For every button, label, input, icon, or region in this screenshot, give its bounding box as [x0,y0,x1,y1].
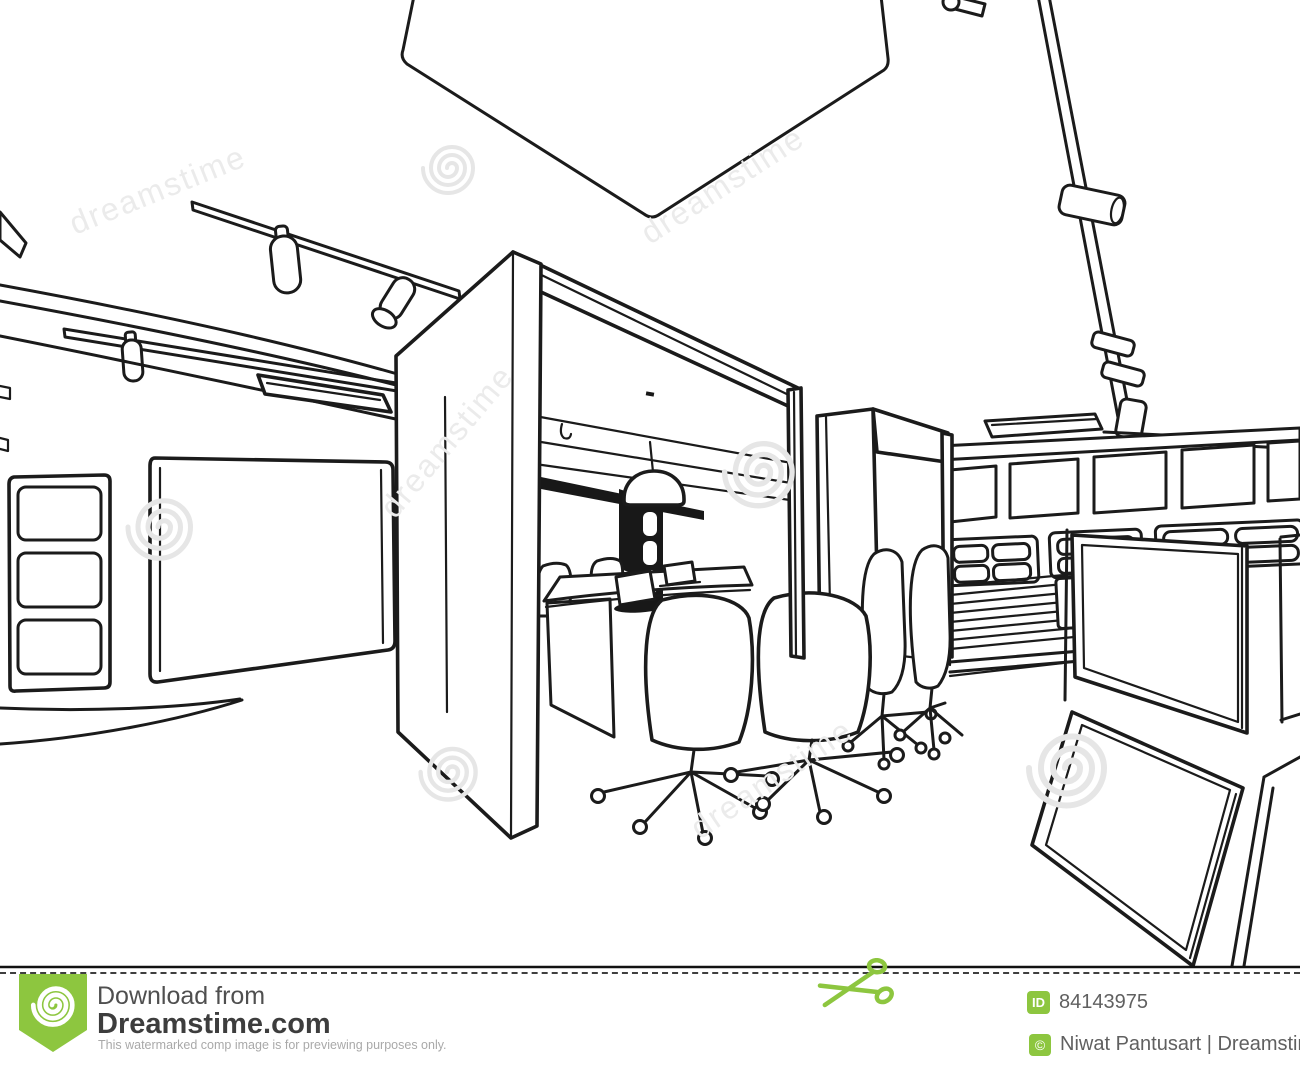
watermark-spiral [423,147,473,193]
left-wall [0,386,395,744]
booth-corner-post [396,252,541,838]
track-lights-right [943,0,1147,440]
copyright-badge: © [1029,1034,1051,1056]
scissors-icon [812,958,902,1022]
watermark-text: dreamstime [64,138,251,241]
credit-text: Niwat Pantusart | Dreamstime.com [1060,1033,1300,1056]
laptop [660,562,700,586]
cabinet-door [18,620,101,674]
wall-base-lines [0,699,242,744]
credit-row: © Niwat Pantusart | Dreamstime.com [1029,1033,1300,1056]
ceiling-light-panel [985,414,1102,437]
display-frame [1072,535,1247,733]
cabinet-door [18,487,101,540]
interior-line-sketch: dreamstime dreamstime dreamstime dreamst… [0,0,1300,972]
stock-preview-page: dreamstime dreamstime dreamstime dreamst… [0,0,1300,1065]
ceiling-diamond-panel [402,0,888,217]
dreamstime-brand-label: Dreamstime.com [97,1008,331,1041]
frame-spine [1065,530,1067,700]
image-id-row: ID 84143975 [1027,991,1148,1014]
booth-top-beam [873,409,948,462]
download-from-label: Download from [97,982,265,1011]
whiteboard [150,458,395,682]
dreamstime-ribbon [19,974,89,1056]
cabinet-door [18,553,101,607]
lamp-dome [624,471,684,505]
image-id-value: 84143975 [1059,991,1148,1014]
disclaimer-text: This watermarked comp image is for previ… [98,1038,447,1052]
id-badge: ID [1027,991,1050,1014]
